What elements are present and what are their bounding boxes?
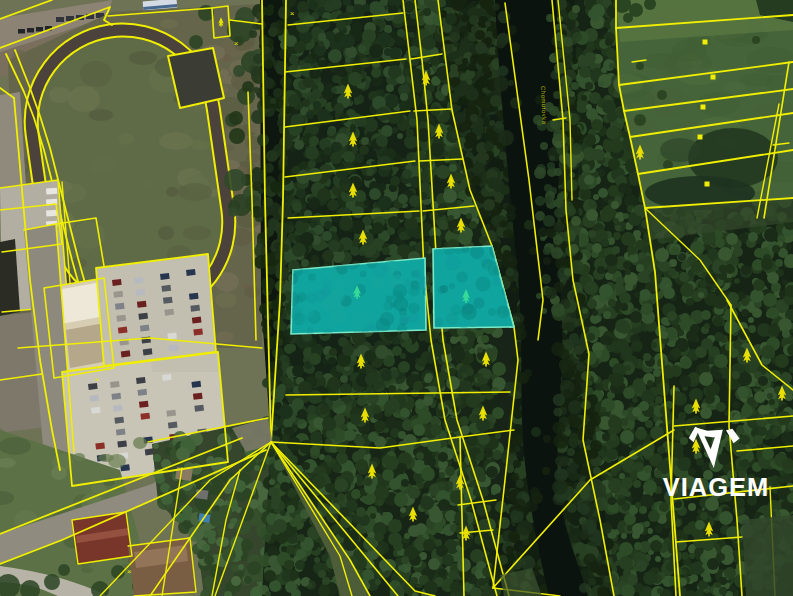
- svg-text:×: ×: [234, 39, 239, 48]
- svg-text:VIAGEM: VIAGEM: [663, 473, 770, 501]
- svg-text:×: ×: [290, 9, 295, 18]
- svg-text:×: ×: [127, 567, 132, 576]
- svg-text:×: ×: [95, 375, 100, 384]
